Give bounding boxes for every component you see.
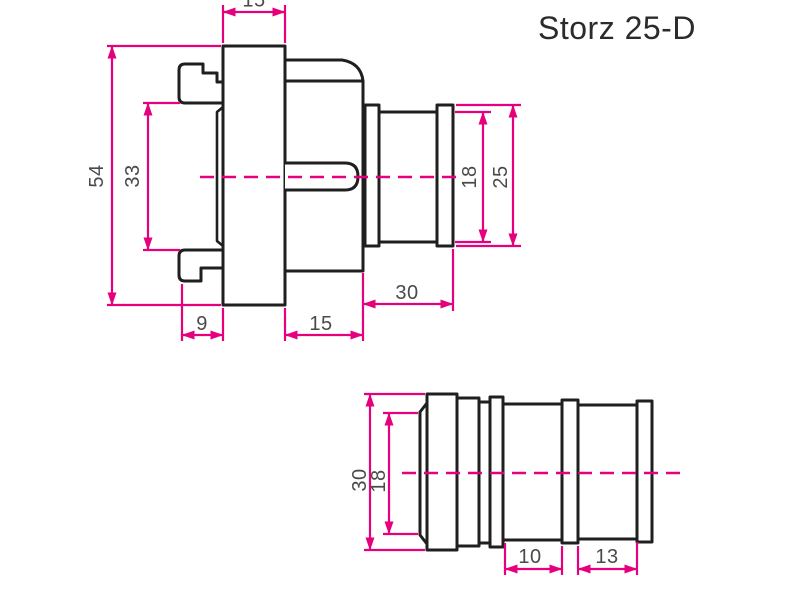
coupling-section-view: 15 54 33 18 25 [86, 0, 521, 341]
nipple-side-view: 30 18 10 13 [349, 394, 684, 575]
hose-tail-ridge-left [365, 105, 379, 246]
storz-claw-top [179, 64, 223, 103]
nipple-ring-end [637, 401, 652, 542]
technical-drawing-canvas: 15 54 33 18 25 [0, 0, 800, 600]
dim-barb-pitch-b-value: 13 [595, 546, 618, 568]
dim-coupling-diameter-value: 54 [86, 164, 108, 187]
locking-lug [285, 60, 363, 81]
storz-claw-bottom [179, 250, 223, 281]
drawing-page: 15 54 33 18 25 [0, 0, 800, 600]
dim-claw-depth: 9 [182, 284, 223, 341]
dim-claw-depth-value: 9 [196, 313, 208, 335]
nipple-barb-a [503, 404, 562, 540]
dim-barb-pitch-a-value: 10 [518, 546, 541, 568]
coupling-flange [223, 46, 285, 305]
drawing-title: Storz 25-D [538, 10, 696, 46]
nipple-ring-mid [562, 400, 578, 543]
dim-tail-length-value: 30 [395, 282, 418, 304]
dim-body-length: 15 [285, 308, 363, 341]
dim-tail-bore-value: 18 [459, 165, 481, 188]
dim-barb-pitch-a: 10 [505, 543, 562, 575]
dim-flange-width: 15 [223, 0, 285, 43]
dim-flange-width-value: 15 [242, 0, 265, 12]
dim-tail-outer-value: 25 [490, 165, 512, 188]
dim-nipple-bore-value: 18 [368, 469, 390, 492]
dim-body-length-value: 15 [309, 313, 332, 335]
dim-claw-clearance-value: 33 [122, 164, 144, 187]
hose-tail-ridge-end [437, 105, 453, 246]
dim-tail-bore: 18 [455, 112, 491, 242]
dim-tail-length: 30 [363, 249, 453, 341]
dim-barb-pitch-b: 13 [578, 542, 637, 575]
dim-claw-clearance: 33 [122, 103, 180, 250]
